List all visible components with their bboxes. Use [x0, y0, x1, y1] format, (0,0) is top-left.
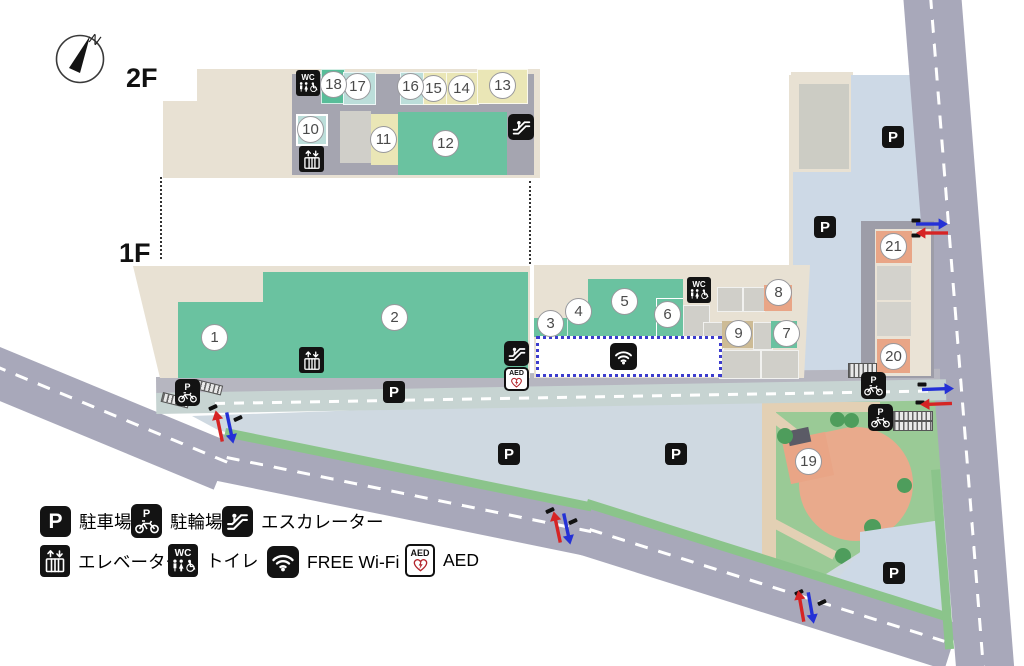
escalator-glyph: [507, 344, 527, 364]
wifi-glyph: [614, 349, 633, 365]
toilet-icon: WC: [687, 277, 711, 303]
wifi-icon: [610, 343, 637, 370]
aed-label: AED: [509, 370, 524, 377]
bicycle-glyph: [870, 417, 891, 428]
aed-label: AED: [410, 549, 429, 558]
tree: [830, 412, 845, 427]
shop-marker-14: 14: [448, 75, 475, 102]
shop-marker-1: 1: [201, 324, 228, 351]
legend-label: AED: [443, 550, 479, 571]
legend-item-toilet: WC トイレ: [168, 544, 259, 577]
shop-marker-15: 15: [420, 75, 447, 102]
bicycle-parking-icon: P: [868, 404, 893, 431]
escalator-icon: [508, 114, 534, 140]
shop-marker-12: 12: [432, 130, 459, 157]
tree: [897, 478, 912, 493]
shop-marker-4: 4: [565, 298, 592, 325]
escalator-glyph: [225, 509, 250, 534]
parking-icon: P: [882, 126, 904, 148]
shop-marker-9: 9: [725, 320, 752, 347]
parking-letter: P: [870, 376, 876, 385]
shop-area-unlabeled: [717, 287, 743, 312]
parking-letter: P: [888, 130, 898, 145]
elevator-glyph: [302, 149, 322, 170]
parking-icon: P: [498, 443, 520, 465]
compass-icon: N: [50, 28, 112, 90]
bicycle-parking-icon: P: [175, 379, 200, 406]
shop-marker-21: 21: [880, 233, 907, 260]
toilet-figures-glyph: [298, 82, 318, 92]
shop-marker-8: 8: [765, 279, 792, 306]
shop-marker-10: 10: [297, 116, 324, 143]
bicycle-parking-icon: P: [861, 372, 886, 399]
tree: [777, 428, 793, 444]
legend-item-aed: AED AED: [405, 544, 479, 577]
wc-label: WC: [301, 74, 314, 82]
parking-letter: P: [889, 566, 899, 581]
legend-label: エスカレーター: [261, 509, 384, 534]
wc-label: WC: [692, 281, 705, 289]
shop-marker-18: 18: [320, 71, 347, 98]
toilet-figures-glyph: [171, 559, 196, 572]
legend-label: FREE Wi-Fi: [307, 552, 399, 573]
shop-marker-16: 16: [397, 73, 424, 100]
entry-arrow-icon: [922, 382, 954, 395]
shop-area-unlabeled: [877, 302, 911, 336]
shop-marker-7: 7: [773, 320, 800, 347]
legend-label: 駐車場: [79, 509, 132, 534]
park-path: [762, 402, 776, 564]
shop-marker-3: 3: [537, 310, 564, 337]
shop-marker-17: 17: [344, 73, 371, 100]
floor-connector-line: [529, 181, 531, 264]
bike-rack: [893, 421, 933, 431]
shop-marker-6: 6: [654, 301, 681, 328]
shop-marker-5: 5: [611, 288, 638, 315]
shop-area-unlabeled: [743, 287, 765, 312]
legend-item-bicycle-parking: P 駐輪場: [131, 504, 223, 538]
exit-arrow-icon: [920, 397, 952, 410]
escalator-icon: [504, 341, 529, 366]
site-map: P P P P P P P P P WC WC AED: [0, 0, 1024, 666]
park-path: [762, 402, 880, 412]
exit-arrow-icon: [916, 227, 948, 239]
escalator-icon: [222, 506, 253, 537]
elevator-glyph: [302, 350, 322, 371]
escalator-glyph: [511, 117, 532, 138]
parking-letter: P: [877, 408, 883, 417]
elevator-glyph: [43, 548, 67, 574]
shop-marker-20: 20: [880, 343, 907, 370]
shop-area-unlabeled: [753, 322, 773, 350]
shop-marker-2: 2: [381, 304, 408, 331]
floor-connector-line: [160, 177, 162, 259]
parking-icon: P: [383, 381, 405, 403]
parking-icon: P: [40, 506, 71, 537]
elevator-icon: [299, 146, 324, 172]
parking-icon: P: [665, 443, 687, 465]
shop-area-unlabeled: [761, 350, 799, 379]
bike-rack: [893, 411, 933, 421]
legend-item-wifi: FREE Wi-Fi: [267, 546, 399, 578]
floor-label-1f: 1F: [119, 238, 151, 269]
bicycle-glyph: [177, 392, 198, 403]
legend-label: トイレ: [206, 548, 259, 573]
bicycle-glyph: [134, 520, 160, 534]
shop-marker-13: 13: [489, 72, 516, 99]
building-footprint-gray: [799, 84, 849, 169]
aed-icon: AED: [405, 544, 435, 577]
parking-letter: P: [504, 447, 514, 462]
parking-letter: P: [184, 383, 190, 392]
shop-marker-11: 11: [370, 126, 397, 153]
toilet-icon: WC: [168, 544, 198, 577]
parking-letter: P: [48, 511, 62, 532]
parking-letter: P: [820, 220, 830, 235]
parking-letter: P: [389, 385, 399, 400]
wifi-icon: [267, 546, 299, 578]
legend-item-parking: P 駐車場: [40, 506, 132, 537]
shop-area-unlabeled: [340, 111, 371, 163]
elevator-icon: [40, 545, 70, 577]
parking-icon: P: [814, 216, 836, 238]
wifi-glyph: [271, 552, 295, 572]
parking-icon: P: [883, 562, 905, 584]
legend-item-escalator: エスカレーター: [222, 506, 384, 537]
wc-label: WC: [175, 549, 192, 559]
toilet-icon: WC: [296, 70, 320, 96]
bicycle-glyph: [863, 385, 884, 396]
aed-icon: AED: [504, 367, 529, 391]
aed-heart-glyph: [411, 558, 430, 572]
aed-heart-glyph: [509, 377, 524, 388]
shop-area-unlabeled: [877, 266, 911, 300]
tree: [844, 413, 859, 428]
shop-area-unlabeled: [719, 350, 761, 379]
legend-label: 駐輪場: [170, 509, 223, 534]
shop-marker-19: 19: [795, 448, 822, 475]
parking-letter: P: [143, 509, 150, 520]
floor-label-2f: 2F: [126, 63, 158, 94]
elevator-icon: [299, 347, 324, 373]
toilet-figures-glyph: [689, 289, 709, 299]
bicycle-parking-icon: P: [131, 504, 162, 538]
legend-item-elevator: エレベーター: [40, 545, 183, 577]
parking-letter: P: [671, 447, 681, 462]
